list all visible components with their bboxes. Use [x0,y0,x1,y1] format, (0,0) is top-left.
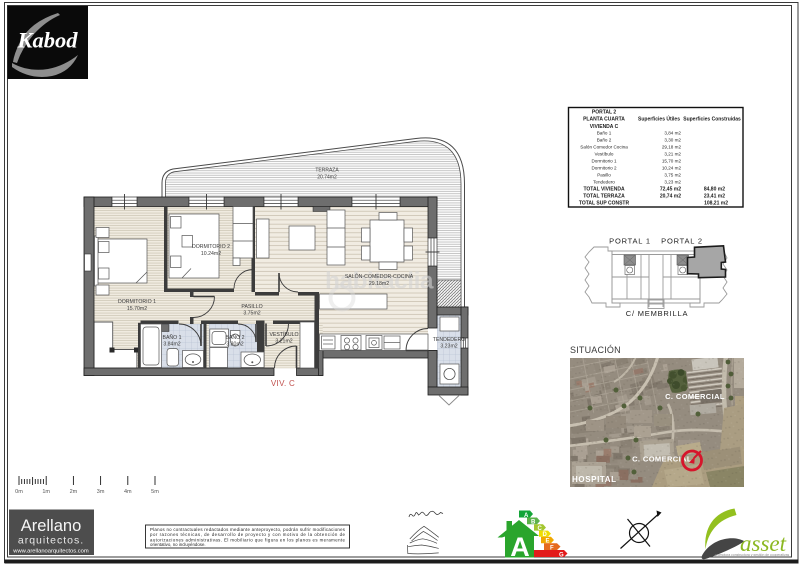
svg-text:3m: 3m [97,489,105,495]
svg-text:TOTAL TERRAZA: TOTAL TERRAZA [583,194,625,200]
svg-text:Baño 1: Baño 1 [597,131,612,136]
svg-text:3,75 m2: 3,75 m2 [664,173,681,178]
svg-text:4m: 4m [124,489,132,495]
svg-text:Dormitorio 1: Dormitorio 1 [591,159,616,164]
svg-text:15.70m2: 15.70m2 [127,306,147,312]
svg-text:5m: 5m [151,489,159,495]
svg-text:3.84m2: 3.84m2 [163,342,180,348]
svg-text:TOTAL VIVIENDA: TOTAL VIVIENDA [583,187,625,193]
svg-text:0m: 0m [15,489,23,495]
svg-text:PORTAL 2: PORTAL 2 [661,237,703,246]
svg-text:Pasillo: Pasillo [597,173,611,178]
svg-text:PLANTA CUARTA: PLANTA CUARTA [583,117,625,123]
svg-text:Vestíbulo: Vestíbulo [595,152,614,157]
svg-text:F: F [550,545,554,551]
svg-text:1m: 1m [42,489,50,495]
svg-text:PORTAL 1: PORTAL 1 [609,237,651,246]
svg-text:20.74m2: 20.74m2 [317,175,337,181]
svg-text:Superficies Construidas: Superficies Construidas [683,117,741,123]
svg-text:C: C [538,526,543,532]
svg-text:15,70 m2: 15,70 m2 [662,159,682,164]
svg-text:por razones técnicas, de desar: por razones técnicas, de desarrollo de p… [150,532,346,537]
svg-text:108,21 m2: 108,21 m2 [704,201,728,207]
svg-text:HOSPITAL: HOSPITAL [572,475,617,484]
svg-text:3,21 m2: 3,21 m2 [664,152,681,157]
svg-text:PASILLO: PASILLO [241,304,262,310]
svg-text:10.24m2: 10.24m2 [201,251,221,257]
svg-text:3,84 m2: 3,84 m2 [664,131,681,136]
svg-text:23,41 m2: 23,41 m2 [704,194,725,200]
svg-text:3,23 m2: 3,23 m2 [664,180,681,185]
svg-text:SITUACIÓN: SITUACIÓN [570,345,621,355]
svg-text:BAÑO 2: BAÑO 2 [225,334,244,341]
svg-text:VESTÍBULO: VESTÍBULO [269,331,298,338]
svg-text:VIV. C: VIV. C [271,379,295,388]
svg-text:Planos no contractuales redact: Planos no contractuales redactados media… [150,527,346,532]
svg-text:TOTAL SUP CONSTR: TOTAL SUP CONSTR [579,201,630,207]
svg-text:A: A [524,513,529,519]
svg-text:SALÓN-COMEDOR-COCINA: SALÓN-COMEDOR-COCINA [345,273,414,280]
svg-text:Arellano: Arellano [21,517,82,535]
svg-text:20,74 m2: 20,74 m2 [660,194,681,200]
svg-text:B: B [531,520,536,526]
svg-text:10,24 m2: 10,24 m2 [662,166,682,171]
svg-text:Dormitorio 2: Dormitorio 2 [591,166,616,171]
svg-text:C/ MEMBRILLA: C/ MEMBRILLA [626,309,689,318]
svg-text:D: D [543,532,548,538]
svg-text:3.23m2: 3.23m2 [440,344,457,350]
svg-text:arquitectos.: arquitectos. [18,535,84,547]
svg-text:orientativo, no incluyéndose.: orientativo, no incluyéndose. [150,542,206,547]
svg-text:www.arellanoarquitectos.com: www.arellanoarquitectos.com [12,549,89,555]
svg-text:E: E [546,538,550,544]
svg-text:DORMITORIO 1: DORMITORIO 1 [118,299,156,305]
svg-text:2m: 2m [70,489,78,495]
svg-text:29,18 m2: 29,18 m2 [662,145,682,150]
svg-text:72,45 m2: 72,45 m2 [660,187,681,193]
svg-text:Kabod: Kabod [16,28,78,53]
svg-text:29.18m2: 29.18m2 [369,281,389,287]
svg-text:TERRAZA: TERRAZA [315,168,339,174]
svg-text:3.75m2: 3.75m2 [243,311,260,317]
svg-text:Baño 2: Baño 2 [597,138,612,143]
svg-text:Superficies Útiles: Superficies Útiles [638,116,680,123]
svg-text:C. COMERCIAL: C. COMERCIAL [665,392,725,401]
svg-text:Salón Comedor Cocina: Salón Comedor Cocina [580,145,628,150]
svg-text:TENDEDERO: TENDEDERO [433,337,466,343]
svg-text:VIVIENDA C: VIVIENDA C [590,124,619,130]
svg-text:Tendedero: Tendedero [593,180,615,185]
svg-text:PORTAL 2: PORTAL 2 [592,110,616,116]
svg-text:promotora constructora y gest: promotora constructora y gestión de coop… [715,553,790,557]
svg-text:84,80 m2: 84,80 m2 [704,187,725,193]
svg-text:DORMITORIO 2: DORMITORIO 2 [192,244,230,250]
svg-text:A: A [510,532,530,562]
svg-text:3.30m2: 3.30m2 [226,342,243,348]
svg-text:BAÑO 1: BAÑO 1 [162,334,181,341]
svg-text:G: G [559,552,564,558]
svg-text:3,30 m2: 3,30 m2 [664,138,681,143]
svg-text:3.21m2: 3.21m2 [275,339,292,345]
